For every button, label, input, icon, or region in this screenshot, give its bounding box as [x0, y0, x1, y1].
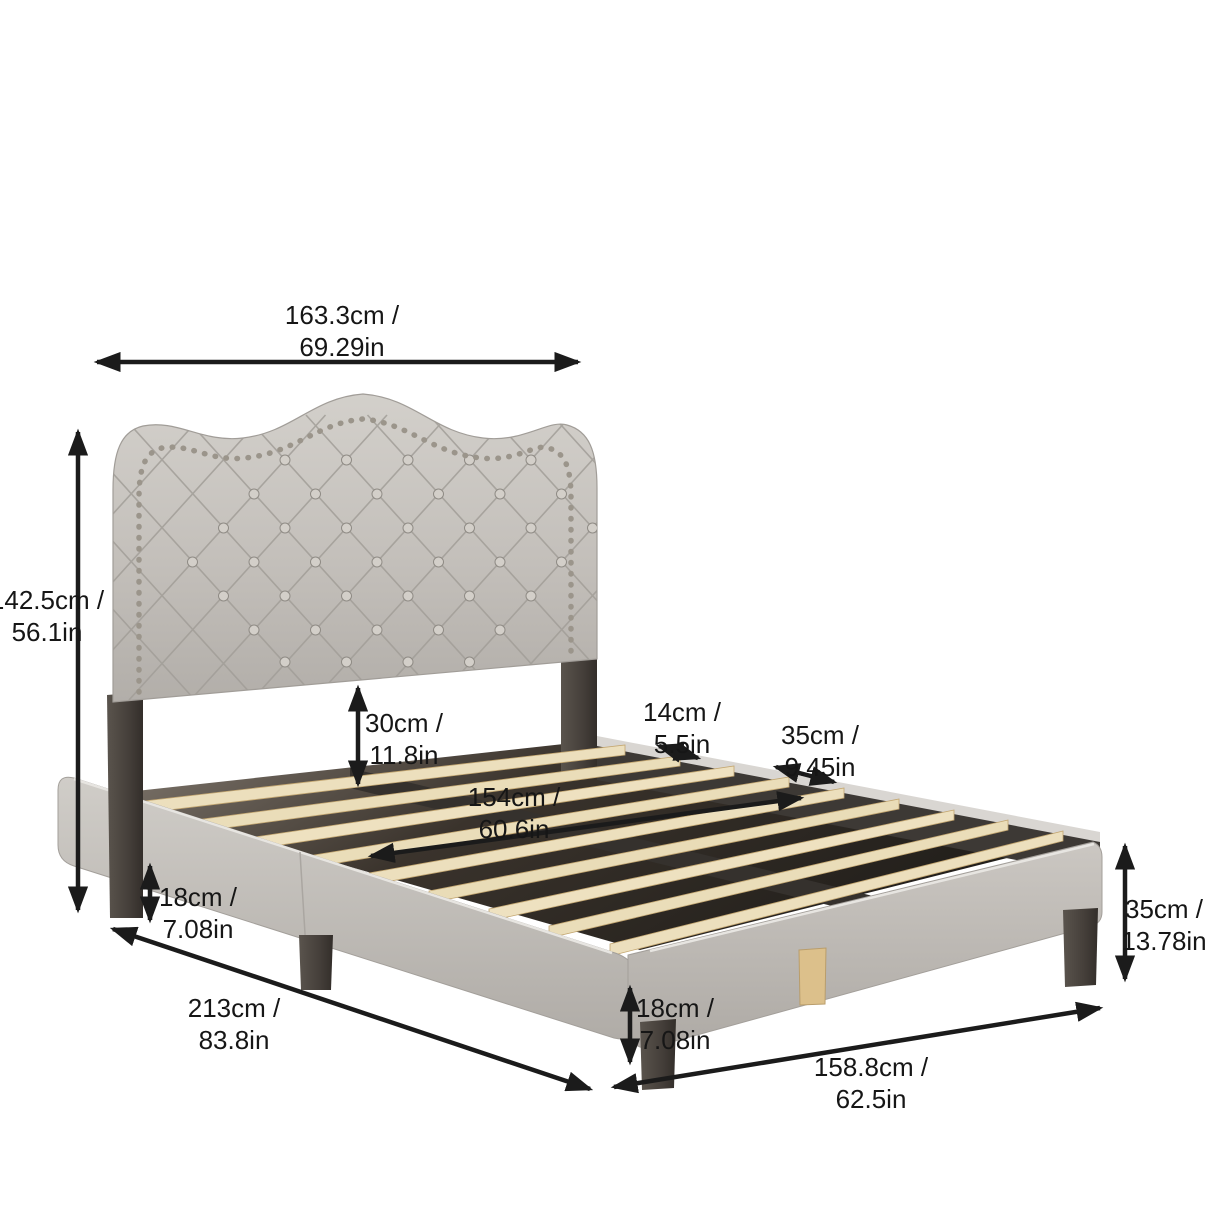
center-support-leg — [799, 948, 826, 1005]
dimension-value-cm: 30cm / — [365, 708, 443, 740]
dimension-value-in: 9.45in — [781, 752, 859, 784]
dimension-label-headboard-width: 163.3cm / 69.29in — [285, 300, 399, 363]
headboard-left-leg — [107, 692, 143, 918]
dimension-label-slat-length: 154cm / 60.6in — [468, 782, 561, 845]
dimension-label-bed-width: 158.8cm / 62.5in — [814, 1052, 928, 1115]
dimension-value-in: 69.29in — [285, 332, 399, 364]
bed-illustration — [0, 0, 1214, 1214]
dimension-label-slat-gap: 14cm / 5.5in — [643, 697, 721, 760]
dimension-label-slat-section-spacing: 35cm / 9.45in — [781, 720, 859, 783]
side-rail-front-leg — [299, 935, 333, 990]
dimension-label-foot-leg-height: 18cm / 7.08in — [636, 993, 714, 1056]
dimension-label-headboard-height: 142.5cm / 56.1in — [0, 585, 104, 648]
dimension-value-cm: 14cm / — [643, 697, 721, 729]
dimension-value-in: 62.5in — [814, 1084, 928, 1116]
dimension-value-in: 5.5in — [643, 729, 721, 761]
dimension-value-cm: 154cm / — [468, 782, 561, 814]
dimension-value-in: 60.6in — [468, 814, 561, 846]
dimension-value-in: 56.1in — [0, 617, 104, 649]
dimension-value-cm: 142.5cm / — [0, 585, 104, 617]
footboard-right-leg — [1063, 908, 1098, 987]
dimension-label-side-leg-height: 18cm / 7.08in — [159, 882, 237, 945]
dimension-value-cm: 18cm / — [636, 993, 714, 1025]
dimension-value-in: 7.08in — [159, 914, 237, 946]
dimension-value-in: 7.08in — [636, 1025, 714, 1057]
dimension-value-in: 11.8in — [365, 740, 443, 772]
dimension-value-in: 83.8in — [188, 1025, 281, 1057]
dimension-value-cm: 35cm / — [1121, 894, 1206, 926]
dimension-value-cm: 213cm / — [188, 993, 281, 1025]
dimension-diagram: 163.3cm / 69.29in 142.5cm / 56.1in 30cm … — [0, 0, 1214, 1214]
dimension-value-cm: 158.8cm / — [814, 1052, 928, 1084]
dimension-label-bed-length: 213cm / 83.8in — [188, 993, 281, 1056]
dimension-label-frame-height: 35cm / 13.78in — [1121, 894, 1206, 957]
dimension-value-in: 13.78in — [1121, 926, 1206, 958]
dimension-value-cm: 18cm / — [159, 882, 237, 914]
dimension-value-cm: 35cm / — [781, 720, 859, 752]
dimension-value-cm: 163.3cm / — [285, 300, 399, 332]
dimension-label-headboard-to-slats: 30cm / 11.8in — [365, 708, 443, 771]
